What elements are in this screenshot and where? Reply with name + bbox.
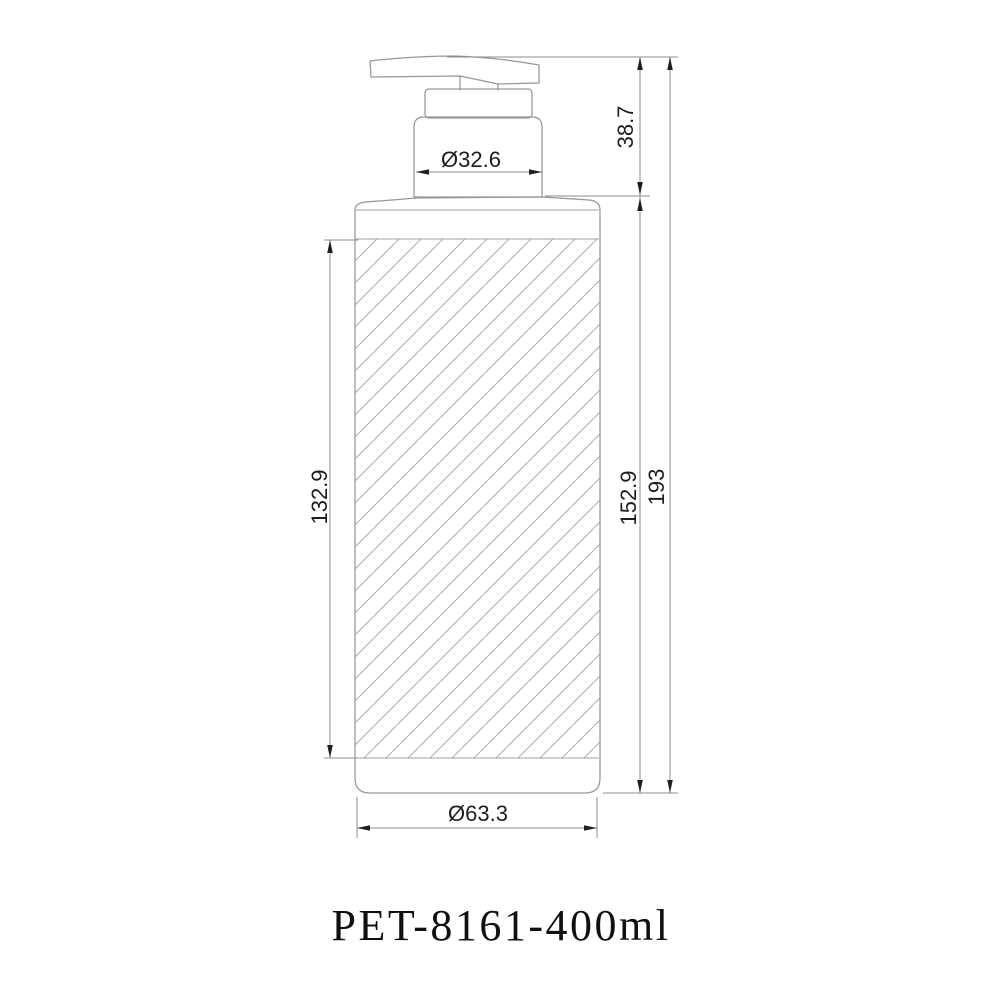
arrowhead-down — [637, 780, 643, 793]
dim-label-panel-height: 132.9 — [307, 469, 332, 524]
pump-assembly — [370, 56, 542, 197]
dim-base-diameter: Ø63.3 — [357, 797, 597, 838]
arrowhead-left — [357, 825, 370, 831]
dim-label-base-diameter: Ø63.3 — [448, 801, 508, 826]
dim-label-body-height: 152.9 — [616, 470, 641, 525]
label-panel-hatch — [356, 239, 600, 758]
arrowhead-right — [584, 825, 597, 831]
arrowhead-down — [667, 780, 673, 793]
arrowhead-down — [327, 745, 333, 758]
bottle-technical-drawing: Ø32.6 38.7 152.9 193 — [0, 0, 1000, 1000]
dim-total-height: 193 — [644, 57, 673, 793]
drawing-title: PET-8161-400ml — [332, 901, 671, 950]
bottle — [355, 197, 600, 793]
arrowhead-up — [327, 240, 333, 253]
arrowhead-left — [416, 169, 429, 175]
pump-head — [370, 56, 539, 84]
dim-neck-diameter: Ø32.6 — [416, 147, 542, 175]
dim-label-panel-height: 132.9 — [307, 240, 358, 758]
dim-label-pump-height: 38.7 — [613, 106, 638, 149]
dim-label-total-height: 193 — [644, 469, 669, 506]
dim-label-neck-diameter: Ø32.6 — [441, 147, 501, 172]
arrowhead-up — [667, 57, 673, 70]
arrowhead-up — [637, 57, 643, 70]
arrowhead-right — [529, 169, 542, 175]
arrowhead-down — [637, 182, 643, 195]
pump-collar — [425, 89, 532, 118]
arrowhead-up — [637, 198, 643, 211]
drawing-sheet: Ø32.6 38.7 152.9 193 — [0, 0, 1000, 1000]
